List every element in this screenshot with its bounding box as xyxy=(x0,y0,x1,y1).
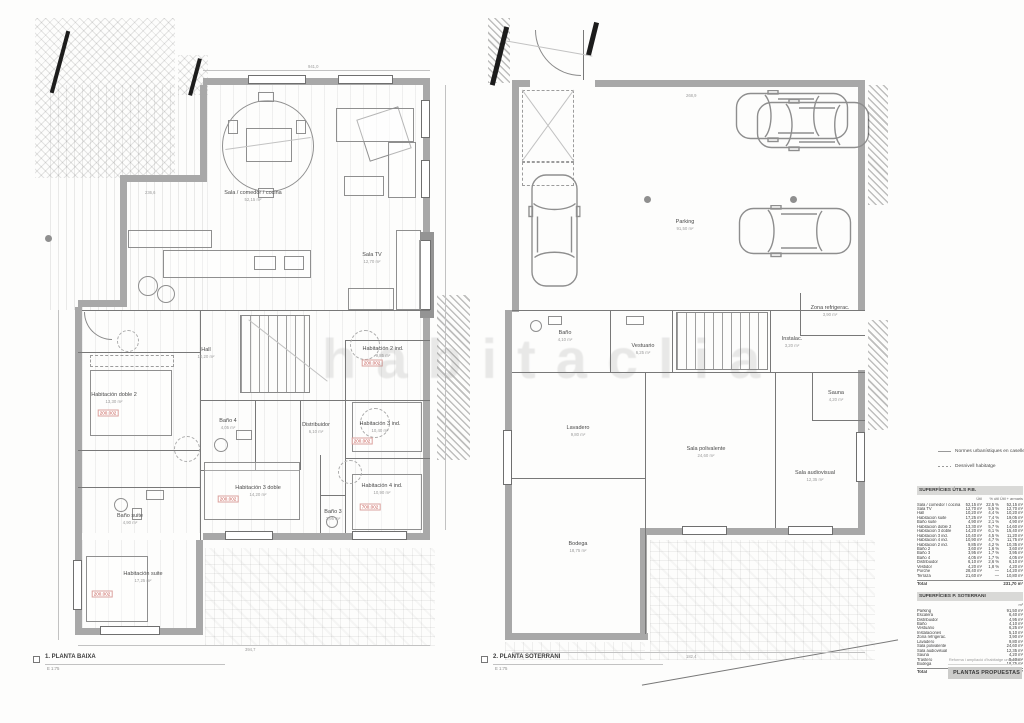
room-label-sala-comedor-cocina: Sala / comedor / cocina52,15 m² xyxy=(224,190,281,202)
window-marker xyxy=(682,526,727,535)
furniture-chair xyxy=(258,92,274,102)
room-name: Habitación 4 ind. xyxy=(362,483,403,489)
window-marker xyxy=(248,75,306,84)
window-marker xyxy=(421,100,430,138)
window-marker xyxy=(503,430,512,485)
table-cell: — xyxy=(982,574,999,578)
legend-item: Desnivell habitatge xyxy=(938,464,996,469)
exterior-paving xyxy=(205,548,435,646)
staircase xyxy=(240,315,310,393)
partition-line xyxy=(78,487,200,488)
legend-line-icon xyxy=(938,451,951,452)
room-name: Habitación doble 2 xyxy=(91,392,137,398)
table-row: Terraza 21,60 m² — 10,80 m² xyxy=(917,574,1023,578)
partition-line xyxy=(800,293,801,335)
window-marker xyxy=(100,626,160,635)
table-title: SUPERFÍCIES ÚTILS P.B. xyxy=(917,486,1023,495)
room-area: 52,15 m² xyxy=(224,197,281,202)
partition-line xyxy=(320,455,321,533)
wall-segment xyxy=(120,175,207,182)
partition-line xyxy=(812,372,813,420)
partition-line xyxy=(200,400,430,401)
partition-line xyxy=(320,495,345,496)
kitchen-cooktop xyxy=(284,256,304,270)
room-name: Baño 4 xyxy=(219,418,236,424)
room-area: 4,05 m² xyxy=(219,425,236,430)
legend-label: Desnivell habitatge xyxy=(955,464,996,469)
title-block: Reforma i ampliació d'habitatge unifamil… xyxy=(948,657,1022,679)
bath-fixture xyxy=(548,316,562,325)
room-area: 18,75 m² xyxy=(569,548,588,553)
caption-box-icon xyxy=(33,656,40,663)
sheet-title: PLANTAS PROPUESTAS xyxy=(948,667,1022,679)
furniture-sofa xyxy=(388,142,416,198)
room-label-hall: Hall10,20 m² xyxy=(198,347,215,359)
dimension-label: 182,4 xyxy=(686,654,696,659)
dimension-label: 941,0 xyxy=(308,64,318,69)
caption-box-icon xyxy=(481,656,488,663)
dimension-line xyxy=(512,652,865,653)
partition-line xyxy=(300,400,301,470)
wall-segment xyxy=(505,633,648,640)
room-name: Sala polivalente xyxy=(687,446,726,452)
partition-line xyxy=(255,400,256,470)
wall-segment xyxy=(200,85,207,182)
window-marker xyxy=(788,526,833,535)
room-name: Sala TV xyxy=(362,252,381,258)
survey-marker xyxy=(45,235,52,242)
partition-line xyxy=(82,310,430,311)
table-title: SUPERFÍCIES P. SOTERRANI xyxy=(917,592,1023,601)
code-tag: 200.002 xyxy=(98,410,119,417)
bath-fixture xyxy=(236,430,252,440)
room-name: Lavadero xyxy=(567,425,590,431)
room-label-hab-suite: Habitación suite17,25 m² xyxy=(123,571,162,583)
window-marker xyxy=(856,432,865,482)
exterior-paving xyxy=(650,540,875,660)
window-marker xyxy=(73,560,82,610)
column-header: % útil xyxy=(982,496,999,501)
room-area: 9,80 m² xyxy=(567,432,590,437)
room-area: 12,35 m² xyxy=(795,477,835,482)
column-header: Útil xyxy=(962,496,982,501)
room-name: Baño suite xyxy=(117,513,143,519)
furniture-chair xyxy=(296,120,306,134)
furniture-wardrobe xyxy=(90,355,174,367)
room-label-instalaciones: Instalac.3,20 m² xyxy=(782,336,802,348)
area-tables: SUPERFÍCIES ÚTILS P.B. Útil % útil Útil … xyxy=(917,486,1023,675)
table-total-row: Total 231,70 m² xyxy=(917,580,1023,586)
dimension-line xyxy=(445,85,446,530)
caption-underline xyxy=(45,664,225,665)
partition-line xyxy=(78,352,200,353)
dimension-line xyxy=(78,645,430,646)
room-area: 4,20 m² xyxy=(828,397,844,402)
room-area: 10,90 m² xyxy=(362,490,403,495)
room-name: Sala audiovisual xyxy=(795,470,835,476)
room-label-lavadero: Lavadero9,80 m² xyxy=(567,425,590,437)
room-label-sala-audiovisual: Sala audiovisual12,35 m² xyxy=(795,470,835,482)
dimension-line xyxy=(58,310,59,640)
room-label-distribuidor: Distribuidor6,10 m² xyxy=(302,422,330,434)
room-label-hab-3-doble: Habitación 3 doble14,20 m² xyxy=(235,485,281,497)
kitchen-sink xyxy=(254,256,276,270)
room-area: 17,25 m² xyxy=(123,578,162,583)
boundary-wall xyxy=(586,22,599,56)
bath-fixture xyxy=(146,490,164,500)
ceiling-light xyxy=(117,330,139,352)
total-value: 231,70 m² xyxy=(999,582,1023,586)
wall-segment xyxy=(78,300,127,307)
table-cell: 10,80 m² xyxy=(999,574,1023,578)
table-column-headers: Útil % útil Útil + armaris xyxy=(917,496,1023,501)
wall-segment xyxy=(203,78,430,85)
car-icon xyxy=(756,99,870,152)
room-area: 3,95 m² xyxy=(324,516,341,521)
room-label-bano-suite: Baño suite4,90 m² xyxy=(117,513,143,525)
legend-item: Normes urbanístiques en caselles xyxy=(938,449,1024,454)
table-column-headers: m² xyxy=(917,602,1023,607)
furniture-sofa xyxy=(396,230,421,310)
window-marker xyxy=(421,160,430,198)
project-title: Reforma i ampliació d'habitatge unifamil… xyxy=(948,657,1022,665)
room-name: Distribuidor xyxy=(302,422,330,428)
partition-line xyxy=(800,335,865,336)
table-body: Sala / comedor / cocina 52,15 m² 22,5 % … xyxy=(917,503,1023,579)
dimension-label: 236,6 xyxy=(145,190,155,195)
room-label-bano-3: Baño 33,95 m² xyxy=(324,509,341,521)
partition-line xyxy=(775,372,776,528)
room-area: 14,20 m² xyxy=(235,492,281,497)
table-row-name: Terraza xyxy=(917,574,962,578)
room-label-bodega: Bodega18,75 m² xyxy=(569,541,588,553)
furniture-tv-console xyxy=(348,288,394,310)
room-name: Habitación 3 doble xyxy=(235,485,281,491)
bath-fixture xyxy=(626,316,644,325)
column-marker xyxy=(644,196,651,203)
window-marker xyxy=(352,531,407,540)
room-area: 6,10 m² xyxy=(302,429,330,434)
code-tag: 200.002 xyxy=(92,591,113,598)
bath-fixture xyxy=(214,438,228,452)
wall-segment xyxy=(120,182,127,307)
wall-segment xyxy=(196,540,203,635)
room-label-sauna: Sauna4,20 m² xyxy=(828,390,844,402)
wall-segment xyxy=(595,80,865,87)
room-name: Zona refrigerac. xyxy=(811,305,850,311)
code-tag: 700.002 xyxy=(360,504,381,511)
car-icon xyxy=(738,205,852,258)
dimension-label: 268,9 xyxy=(686,93,696,98)
total-label: Total xyxy=(917,582,999,586)
ceiling-light xyxy=(174,436,200,462)
drawing-sheet: 200.002 200.002 200.002 200.002 700.002 … xyxy=(0,0,1024,723)
room-name: Hall xyxy=(201,347,210,353)
room-label-hab-3-ind: Habitación 3 ind.10,40 m² xyxy=(360,421,401,433)
kitchen-cabinet xyxy=(128,230,212,248)
window-marker xyxy=(225,531,273,540)
furniture-chair xyxy=(228,120,238,134)
plan-caption-left: 1. PLANTA BAIXA xyxy=(45,654,96,660)
room-label-bano-4: Baño 44,05 m² xyxy=(219,418,236,430)
room-name: Bodega xyxy=(569,541,588,547)
room-label-sala-polivalente: Sala polivalente24,60 m² xyxy=(687,446,726,458)
column-marker xyxy=(790,196,797,203)
legend-dashed-line-icon xyxy=(938,466,951,467)
furniture-stool xyxy=(138,276,158,296)
legend-label: Normes urbanístiques en caselles xyxy=(955,449,1024,454)
room-area: 3,90 m² xyxy=(811,312,850,317)
plan-caption-right: 2. PLANTA SOTERRANI xyxy=(493,654,560,660)
column-header: Útil + armaris xyxy=(999,496,1023,501)
room-name: Habitación 3 ind. xyxy=(360,421,401,427)
furniture-sofa xyxy=(336,108,414,142)
car-icon xyxy=(528,174,581,288)
code-tag: 200.002 xyxy=(352,438,373,445)
plan-scale-right: E 1:75 xyxy=(495,666,507,671)
dimension-line xyxy=(203,70,430,71)
room-label-sala-tv: Sala TV12,70 m² xyxy=(362,252,381,264)
room-label-hab-4-ind: Habitación 4 ind.10,90 m² xyxy=(362,483,403,495)
partition-line xyxy=(512,478,645,479)
dimension-label: 394,7 xyxy=(245,647,255,652)
room-area: 12,70 m² xyxy=(362,259,381,264)
room-name: Sala / comedor / cocina xyxy=(224,190,281,196)
partition-line xyxy=(812,420,865,421)
room-area: 10,40 m² xyxy=(360,428,401,433)
table-cell: 21,60 m² xyxy=(962,574,982,578)
furniture-coffee-table xyxy=(344,176,384,196)
column-header: m² xyxy=(999,602,1023,607)
room-name: Parking xyxy=(676,219,695,225)
room-name: Instalac. xyxy=(782,336,802,342)
room-name: Sauna xyxy=(828,390,844,396)
room-area: 24,60 m² xyxy=(687,453,726,458)
room-label-zona-refrigeracion: Zona refrigerac.3,90 m² xyxy=(811,305,850,317)
watermark: habitaclia xyxy=(322,326,780,391)
room-area: 4,90 m² xyxy=(117,520,143,525)
furniture-bed xyxy=(86,556,148,622)
surface-table-ground-floor: SUPERFÍCIES ÚTILS P.B. Útil % útil Útil … xyxy=(917,486,1023,586)
plan-scale-left: E 1:75 xyxy=(47,666,59,671)
partition-line xyxy=(200,310,201,540)
neighbour-hatch xyxy=(868,320,888,430)
furniture-stool xyxy=(157,285,175,303)
room-name: Habitación suite xyxy=(123,571,162,577)
caption-underline xyxy=(493,664,663,665)
ceiling-light xyxy=(338,460,362,484)
neighbour-hatch xyxy=(868,85,888,205)
room-area: 13,30 m² xyxy=(91,399,137,404)
partition-line xyxy=(645,372,646,634)
partition-line xyxy=(345,458,430,459)
room-name: Baño 3 xyxy=(324,509,341,515)
window-marker xyxy=(338,75,393,84)
room-label-parking: Parking91,50 m² xyxy=(676,219,695,231)
room-area: 91,50 m² xyxy=(676,226,695,231)
room-area: 10,20 m² xyxy=(198,354,215,359)
bath-fixture xyxy=(114,498,128,512)
room-label-hab-doble-2: Habitación doble 213,30 m² xyxy=(91,392,137,404)
wall-segment xyxy=(512,80,519,312)
room-area: 3,20 m² xyxy=(782,343,802,348)
